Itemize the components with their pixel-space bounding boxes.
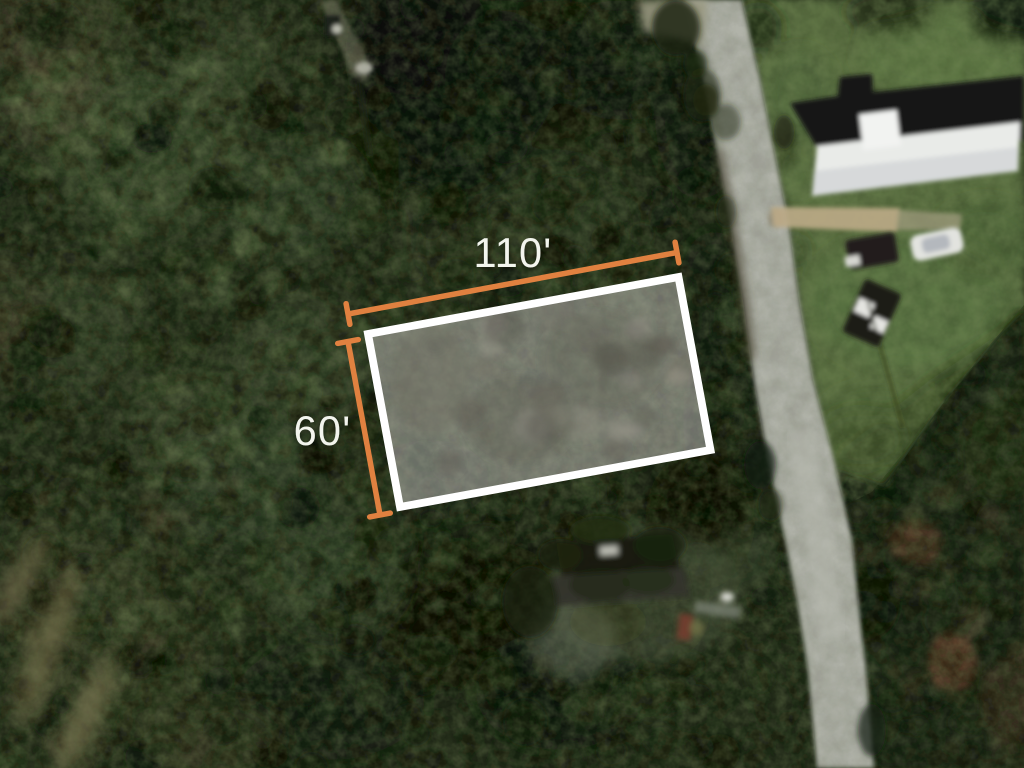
svg-text:60': 60' bbox=[294, 407, 352, 454]
svg-text:110': 110' bbox=[474, 229, 553, 276]
